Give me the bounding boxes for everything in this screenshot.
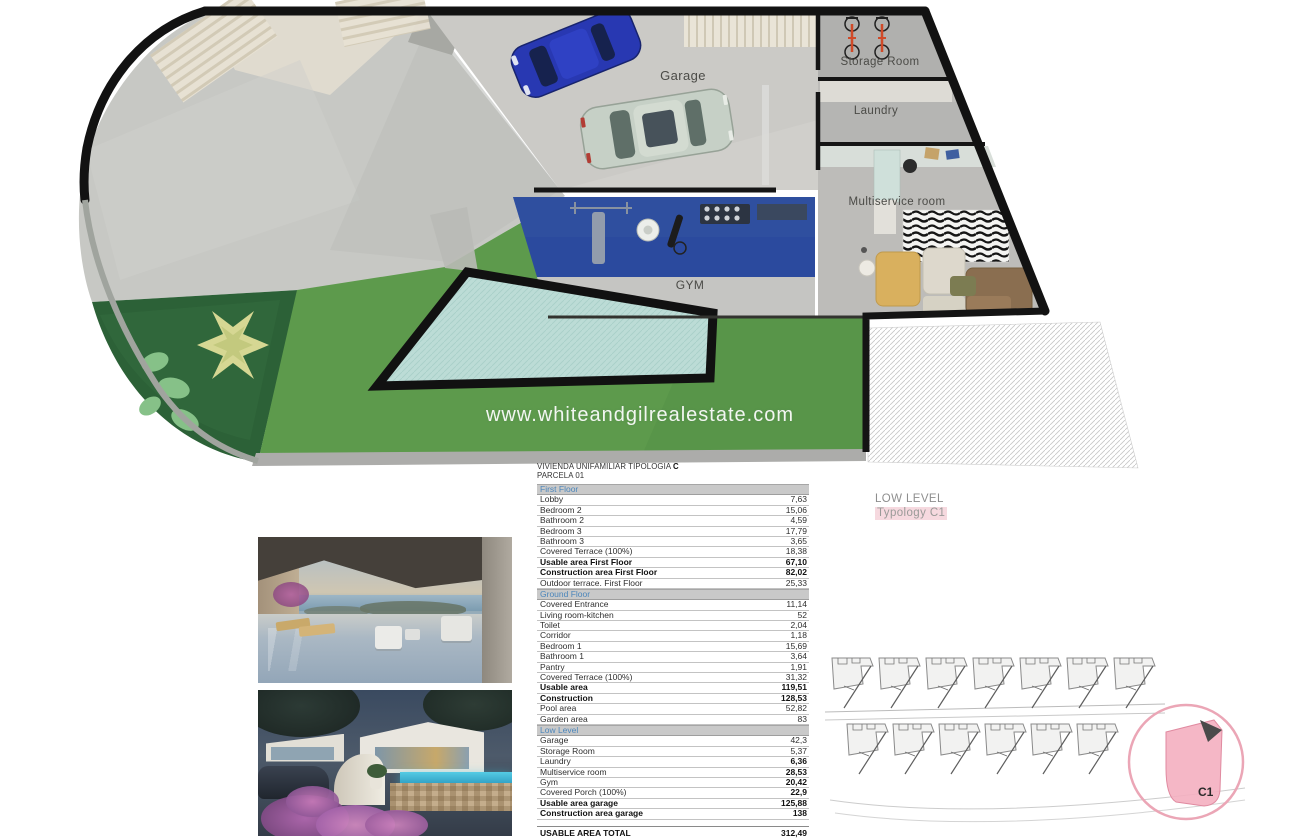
laundry-label: Laundry (834, 105, 918, 117)
row-value: 3,65 (790, 537, 807, 547)
row-label: Living room-kitchen (540, 611, 614, 621)
area-table-body: First FloorLobby7,63Bedroom 215,06Bathro… (537, 484, 809, 838)
row-label: Laundry (540, 757, 571, 767)
covered-porch-patio (868, 322, 1138, 468)
row-value: 28,53 (786, 768, 807, 778)
row-label: Covered Porch (100%) (540, 788, 626, 798)
row-value: 31,32 (786, 673, 807, 683)
table-row: Laundry6,36 (537, 757, 809, 767)
row-value: 5,37 (790, 747, 807, 757)
table-row: Construction area First Floor82,02 (537, 568, 809, 578)
row-label: Covered Terrace (100%) (540, 673, 632, 683)
row-label: Construction (540, 694, 593, 704)
row-value: 1,18 (790, 631, 807, 641)
villa-glazing (271, 747, 335, 760)
row-value: 17,79 (786, 527, 807, 537)
table-row: Bathroom 13,64 (537, 652, 809, 662)
row-label: Usable area (540, 683, 588, 693)
row-label: Construction area garage (540, 809, 643, 819)
terrace-chair (441, 616, 472, 641)
brochure-page: Garage Storage Room Laundry Multiservice… (0, 0, 1290, 840)
terrace-column (482, 537, 512, 683)
row-value: 15,69 (786, 642, 807, 652)
row-value: 2,04 (790, 621, 807, 631)
terrace-chair (375, 626, 402, 649)
table-row: Outdoor terrace. First Floor25,33 (537, 579, 809, 589)
table-section-header: Low Level (537, 725, 809, 736)
table-row: Living room-kitchen52 (537, 611, 809, 621)
row-value: 125,88 (781, 799, 807, 809)
desk (874, 150, 900, 202)
table-section-header: First Floor (537, 484, 809, 495)
row-label: Storage Room (540, 747, 595, 757)
table-row: Construction area garage138 (537, 809, 809, 819)
photo-terrace-pool (258, 537, 512, 683)
row-value: 52 (798, 611, 807, 621)
row-label: Bedroom 3 (540, 527, 582, 537)
table-row: Toilet2,04 (537, 621, 809, 631)
site-units-bottom-row (847, 724, 1118, 774)
row-value: 128,53 (781, 694, 807, 704)
office-chair (903, 159, 917, 173)
gym-label: GYM (652, 278, 728, 292)
storage-room-label: Storage Room (826, 56, 934, 68)
total-value: 312,49 (781, 829, 807, 839)
garage-label: Garage (640, 68, 726, 83)
level-title: LOW LEVEL (875, 493, 947, 507)
storage-counter (820, 81, 952, 102)
row-value: 3,64 (790, 652, 807, 662)
highlighted-unit-c1: C1 (1129, 705, 1243, 819)
row-value: 138 (793, 809, 807, 819)
table-total-row: USABLE AREA TOTAL312,49 (537, 826, 809, 838)
row-value: 20,42 (786, 778, 807, 788)
watermark: www.whiteandgilrealestate.com (440, 404, 840, 427)
table-row: Garden area83 (537, 715, 809, 725)
row-value: 82,02 (786, 568, 807, 578)
site-units-top-row (832, 658, 1155, 708)
row-value: 119,51 (781, 683, 807, 693)
unit-code-label: C1 (1198, 785, 1214, 799)
row-value: 83 (798, 715, 807, 725)
flower-bush (365, 810, 429, 836)
row-value: 22,9 (790, 788, 807, 798)
garage-shelving (684, 13, 816, 47)
row-label: Bedroom 1 (540, 642, 582, 652)
row-label: Gym (540, 778, 558, 788)
total-label: USABLE AREA TOTAL (540, 829, 631, 839)
table-title: VIVIENDA UNIFAMILIAR TIPOLOGIA C (537, 462, 809, 471)
tree-silhouette (258, 690, 360, 737)
table-subtitle: PARCELA 01 (537, 471, 809, 480)
row-label: Garage (540, 736, 568, 746)
area-table: VIVIENDA UNIFAMILIAR TIPOLOGIA C PARCELA… (537, 462, 809, 838)
photo-villa-night (258, 690, 512, 836)
table-row: Construction128,53 (537, 694, 809, 704)
row-label: Outdoor terrace. First Floor (540, 579, 643, 589)
row-value: 25,33 (786, 579, 807, 589)
row-label: Usable area First Floor (540, 558, 632, 568)
row-label: Pantry (540, 663, 565, 673)
row-label: Garden area (540, 715, 588, 725)
row-label: Bathroom 2 (540, 516, 584, 526)
typology-badge: Typology C1 (875, 507, 947, 521)
row-label: Lobby (540, 495, 563, 505)
row-value: 4,59 (790, 516, 807, 526)
row-label: Bathroom 1 (540, 652, 584, 662)
row-value: 52,82 (786, 704, 807, 714)
terrace-table (405, 629, 420, 640)
site-plan: C1 (820, 650, 1250, 835)
row-label: Covered Terrace (100%) (540, 547, 632, 557)
row-label: Corridor (540, 631, 571, 641)
level-caption: LOW LEVEL Typology C1 (875, 493, 947, 520)
stone-wall (390, 783, 512, 811)
row-value: 1,91 (790, 663, 807, 673)
table-title-block: VIVIENDA UNIFAMILIAR TIPOLOGIA C PARCELA… (537, 462, 809, 480)
villa-glazing (375, 747, 469, 769)
multiservice-room-label: Multiservice room (838, 196, 956, 208)
table-row: Bathroom 24,59 (537, 516, 809, 526)
row-label: Usable area garage (540, 799, 618, 809)
row-label: Bathroom 3 (540, 537, 584, 547)
row-value: 18,38 (786, 547, 807, 557)
row-value: 11,14 (786, 600, 807, 610)
row-value: 15,06 (786, 506, 807, 516)
row-label: Construction area First Floor (540, 568, 657, 578)
row-label: Bedroom 2 (540, 506, 582, 516)
row-label: Toilet (540, 621, 560, 631)
row-value: 6,36 (790, 757, 807, 767)
row-value: 67,10 (786, 558, 807, 568)
row-label: Covered Entrance (540, 600, 609, 610)
table-row: Multiservice room28,53 (537, 768, 809, 778)
row-value: 42,3 (790, 736, 807, 746)
row-label: Multiservice room (540, 768, 607, 778)
row-label: Pool area (540, 704, 576, 714)
table-row: Storage Room5,37 (537, 747, 809, 757)
row-value: 7,63 (790, 495, 807, 505)
